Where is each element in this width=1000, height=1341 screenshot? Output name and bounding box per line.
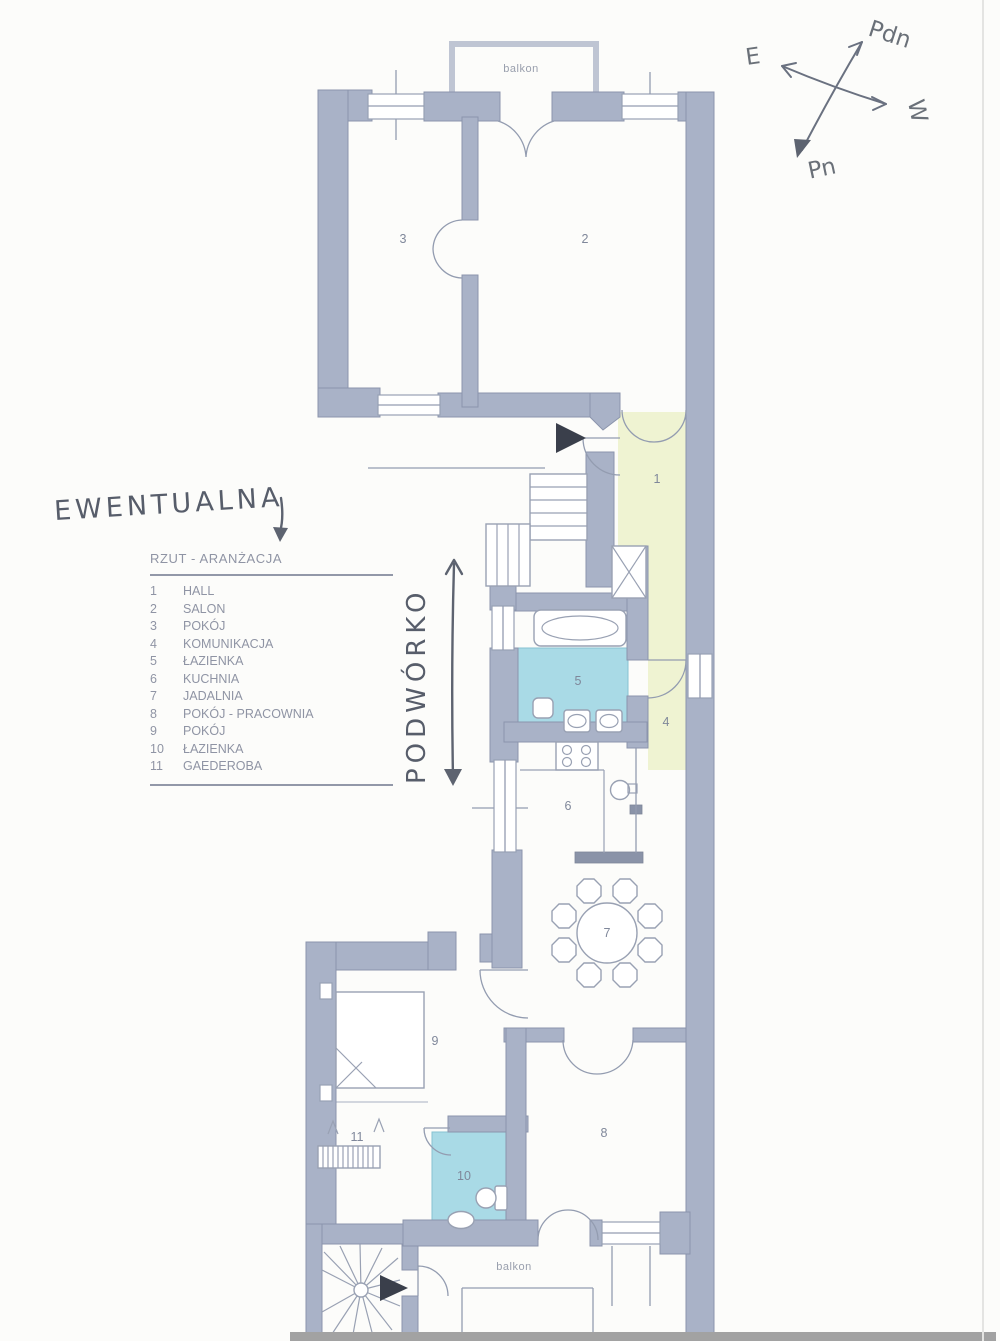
room-label-6: 6 [565, 799, 572, 813]
legend-item: 5ŁAZIENKA [150, 653, 393, 671]
compass-label-pdn: Pdn [865, 16, 914, 54]
scan-bottom-shadow [290, 1332, 996, 1341]
balcony-top-label: balkon [503, 63, 538, 75]
compass-label-e: E [744, 43, 762, 71]
legend-item: 7JADALNIA [150, 688, 393, 706]
kitchen-sink [611, 781, 630, 800]
legend-item: 11GAEDEROBA [150, 758, 393, 776]
courtyard-double-arrow [452, 564, 454, 778]
bedroom-fixtures [320, 983, 424, 1101]
main-staircase [486, 474, 587, 586]
room-label-1: 1 [654, 472, 661, 486]
bidet [533, 698, 553, 718]
room-label-3: 3 [400, 232, 407, 246]
legend: RZUT - ARANŻACJA 1HALL 2SALON 3POKÓJ 4KO… [150, 551, 393, 786]
room-label-2: 2 [582, 232, 589, 246]
small-sink [448, 1212, 474, 1229]
compass-label-w: W [902, 97, 932, 125]
legend-item: 1HALL [150, 583, 393, 601]
legend-item: 2SALON [150, 601, 393, 619]
courtyard-handwritten-label: PODWÓRKO [402, 588, 432, 785]
legend-item: 8POKÓJ - PRACOWNIA [150, 706, 393, 724]
legend-title: RZUT - ARANŻACJA [150, 551, 393, 566]
room-label-10: 10 [457, 1169, 471, 1183]
bed [336, 992, 424, 1088]
compass-label-pn: Pn [806, 153, 839, 184]
legend-rows: 1HALL 2SALON 3POKÓJ 4KOMUNIKACJA 5ŁAZIEN… [150, 583, 393, 776]
legend-item: 3POKÓJ [150, 618, 393, 636]
stove [556, 742, 598, 770]
scan-right-edge [982, 0, 984, 1341]
legend-item: 9POKÓJ [150, 723, 393, 741]
compass: E Pdn W Pn [744, 16, 932, 185]
toilet-tank [495, 1186, 507, 1210]
kitchen-fixtures [520, 742, 637, 853]
room-label-5: 5 [575, 674, 582, 688]
legend-item: 10ŁAZIENKA [150, 741, 393, 759]
shaft-crossed-box [612, 546, 646, 598]
room-label-7: 7 [604, 926, 611, 940]
toilet [476, 1188, 496, 1208]
legend-divider-bottom [150, 784, 393, 786]
room-label-11: 11 [351, 1130, 364, 1144]
scanned-floor-plan-page: E Pdn W Pn 1 2 3 4 5 6 7 8 9 10 11 balko… [0, 0, 1000, 1341]
balcony-bottom-label: balkon [496, 1261, 531, 1273]
legend-item: 4KOMUNIKACJA [150, 636, 393, 654]
legend-item: 6KUCHNIA [150, 671, 393, 689]
entrance-arrow-icon [556, 423, 586, 453]
room-label-4: 4 [663, 715, 670, 729]
room-label-8: 8 [601, 1126, 608, 1140]
room-label-9: 9 [432, 1034, 439, 1048]
legend-divider-top [150, 574, 393, 576]
